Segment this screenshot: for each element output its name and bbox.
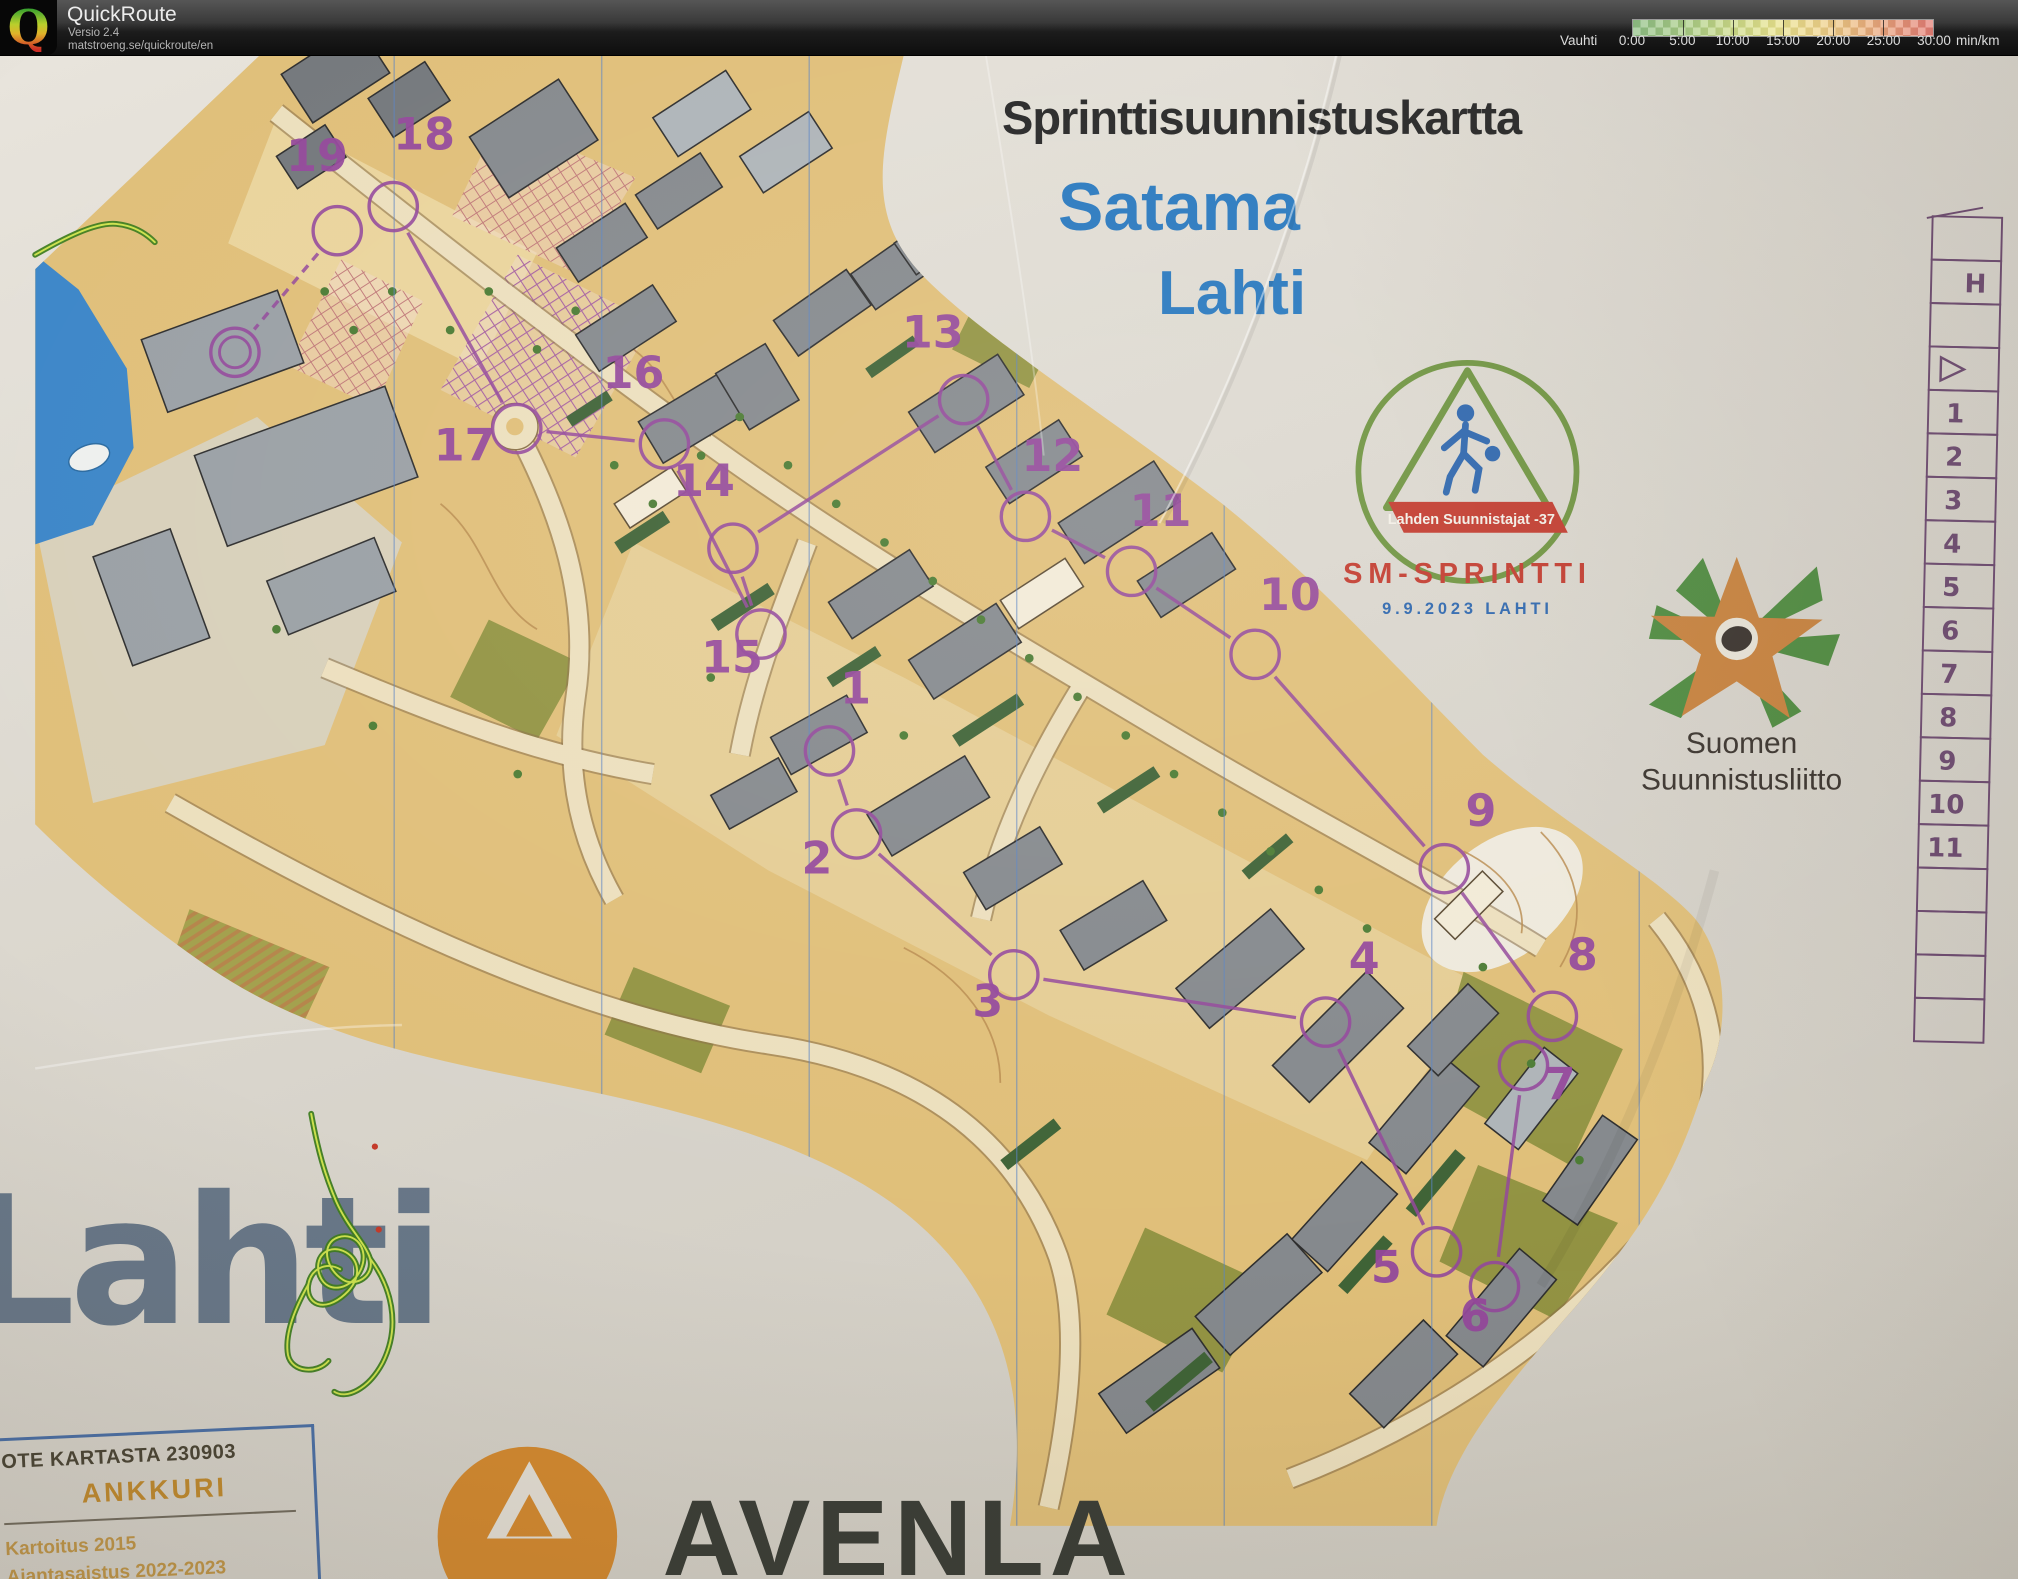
toolbar: Q QuickRoute Versio 2.4 matstroeng.se/qu… [0,0,2018,56]
pace-legend-unit: min/km [1956,33,2000,48]
pace-tick-label: 5:00 [1669,33,1695,48]
info-ankkuri: ANKKURI [2,1468,306,1513]
pace-tick-label: 10:00 [1716,33,1750,48]
lahti-city-brand: Lahti [0,1158,438,1365]
map-info-box: OTE KARTASTA 230903 ANKKURI Kartoitus 20… [0,1424,323,1579]
info-divider [4,1510,296,1525]
pace-tick-label: 30:00 [1917,33,1951,48]
quickroute-logo-icon: Q [0,0,57,55]
map-title: Sprinttisuunnistuskartta [1002,90,1521,145]
pace-tick-label: 0:00 [1619,33,1645,48]
pace-tick-label: 15:00 [1766,33,1800,48]
pace-tick-label: 25:00 [1867,33,1901,48]
quickroute-window: Q QuickRoute Versio 2.4 matstroeng.se/qu… [0,0,2018,1579]
app-title: QuickRoute [67,3,177,27]
pace-legend-label: Vauhti [1560,33,1597,48]
app-url: matstroeng.se/quickroute/en [68,40,213,52]
info-extract: OTE KARTASTA 230903 [1,1437,305,1474]
app-version: Versio 2.4 [68,27,119,39]
map-subtitle: Satama [1058,168,1300,246]
map-city: Lahti [1158,258,1306,329]
pace-tick-label: 20:00 [1816,33,1850,48]
